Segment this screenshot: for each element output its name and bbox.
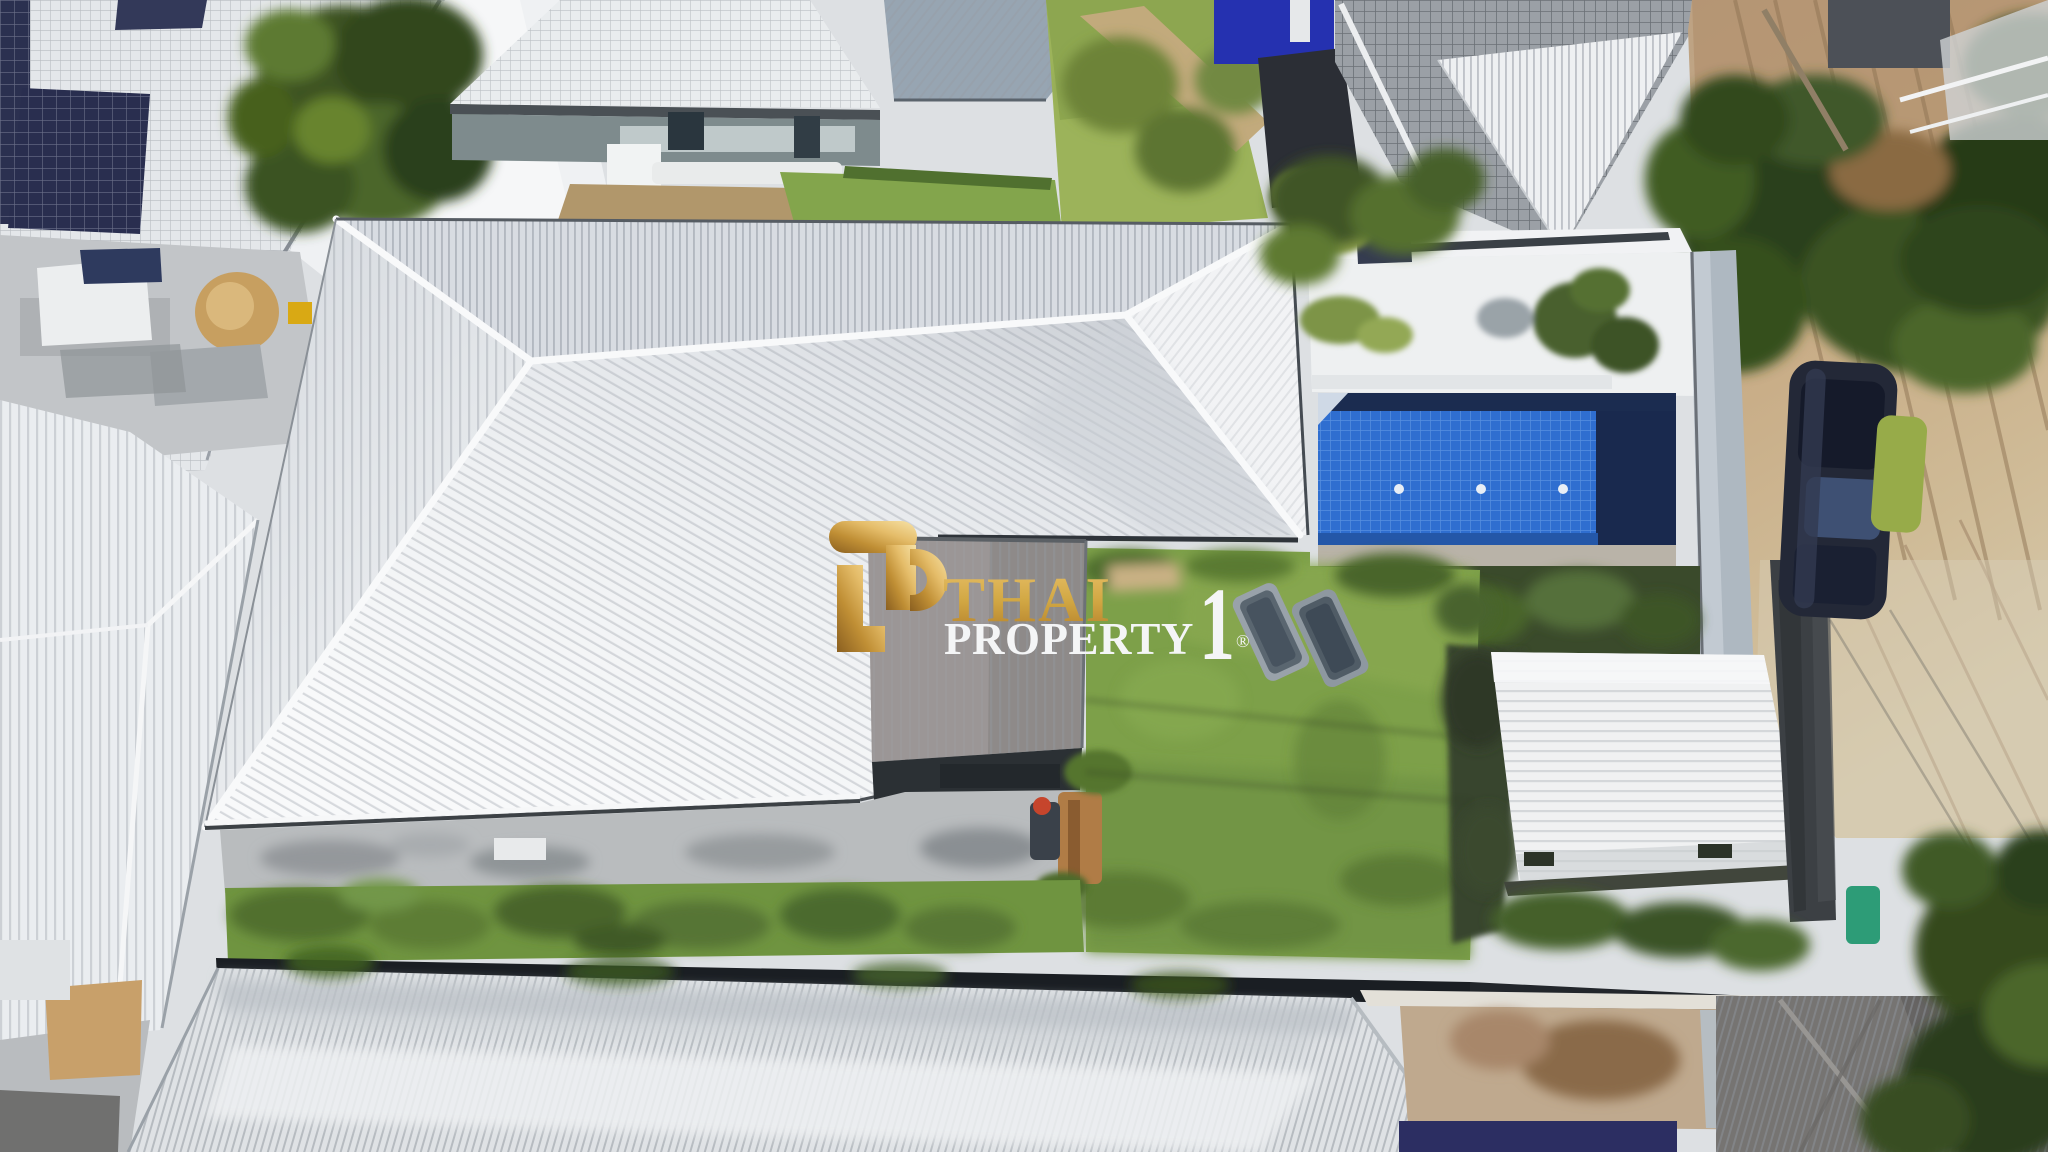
svg-text:®: ® [1236,631,1250,651]
svg-text:PROPERTY: PROPERTY [944,614,1194,664]
svg-text:1: 1 [1199,567,1235,682]
